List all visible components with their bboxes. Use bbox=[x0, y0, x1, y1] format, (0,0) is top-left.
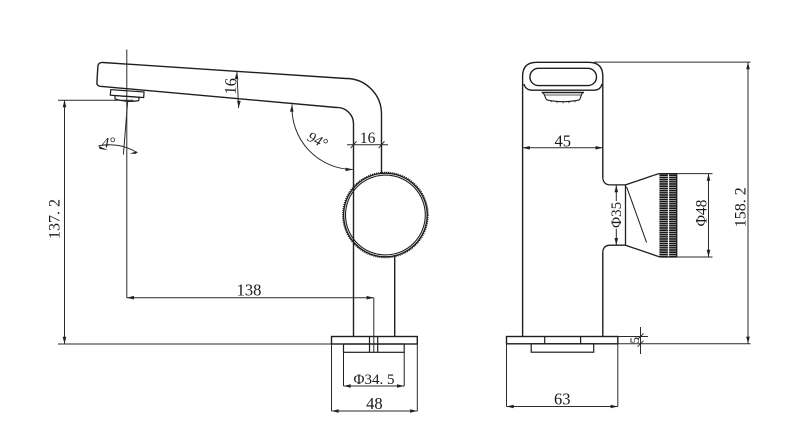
svg-text:16: 16 bbox=[360, 130, 376, 147]
svg-text:137. 2: 137. 2 bbox=[46, 199, 63, 239]
svg-text:Φ48: Φ48 bbox=[694, 199, 711, 226]
svg-text:63: 63 bbox=[554, 390, 571, 409]
svg-text:138: 138 bbox=[237, 281, 262, 300]
svg-text:Φ34. 5: Φ34. 5 bbox=[354, 372, 395, 388]
svg-text:Φ35: Φ35 bbox=[609, 202, 625, 228]
svg-text:4°: 4° bbox=[102, 136, 116, 152]
svg-text:16: 16 bbox=[221, 78, 241, 95]
svg-text:158. 2: 158. 2 bbox=[732, 187, 749, 227]
svg-text:48: 48 bbox=[366, 394, 383, 413]
svg-text:5: 5 bbox=[627, 337, 642, 344]
svg-text:45: 45 bbox=[555, 131, 572, 150]
